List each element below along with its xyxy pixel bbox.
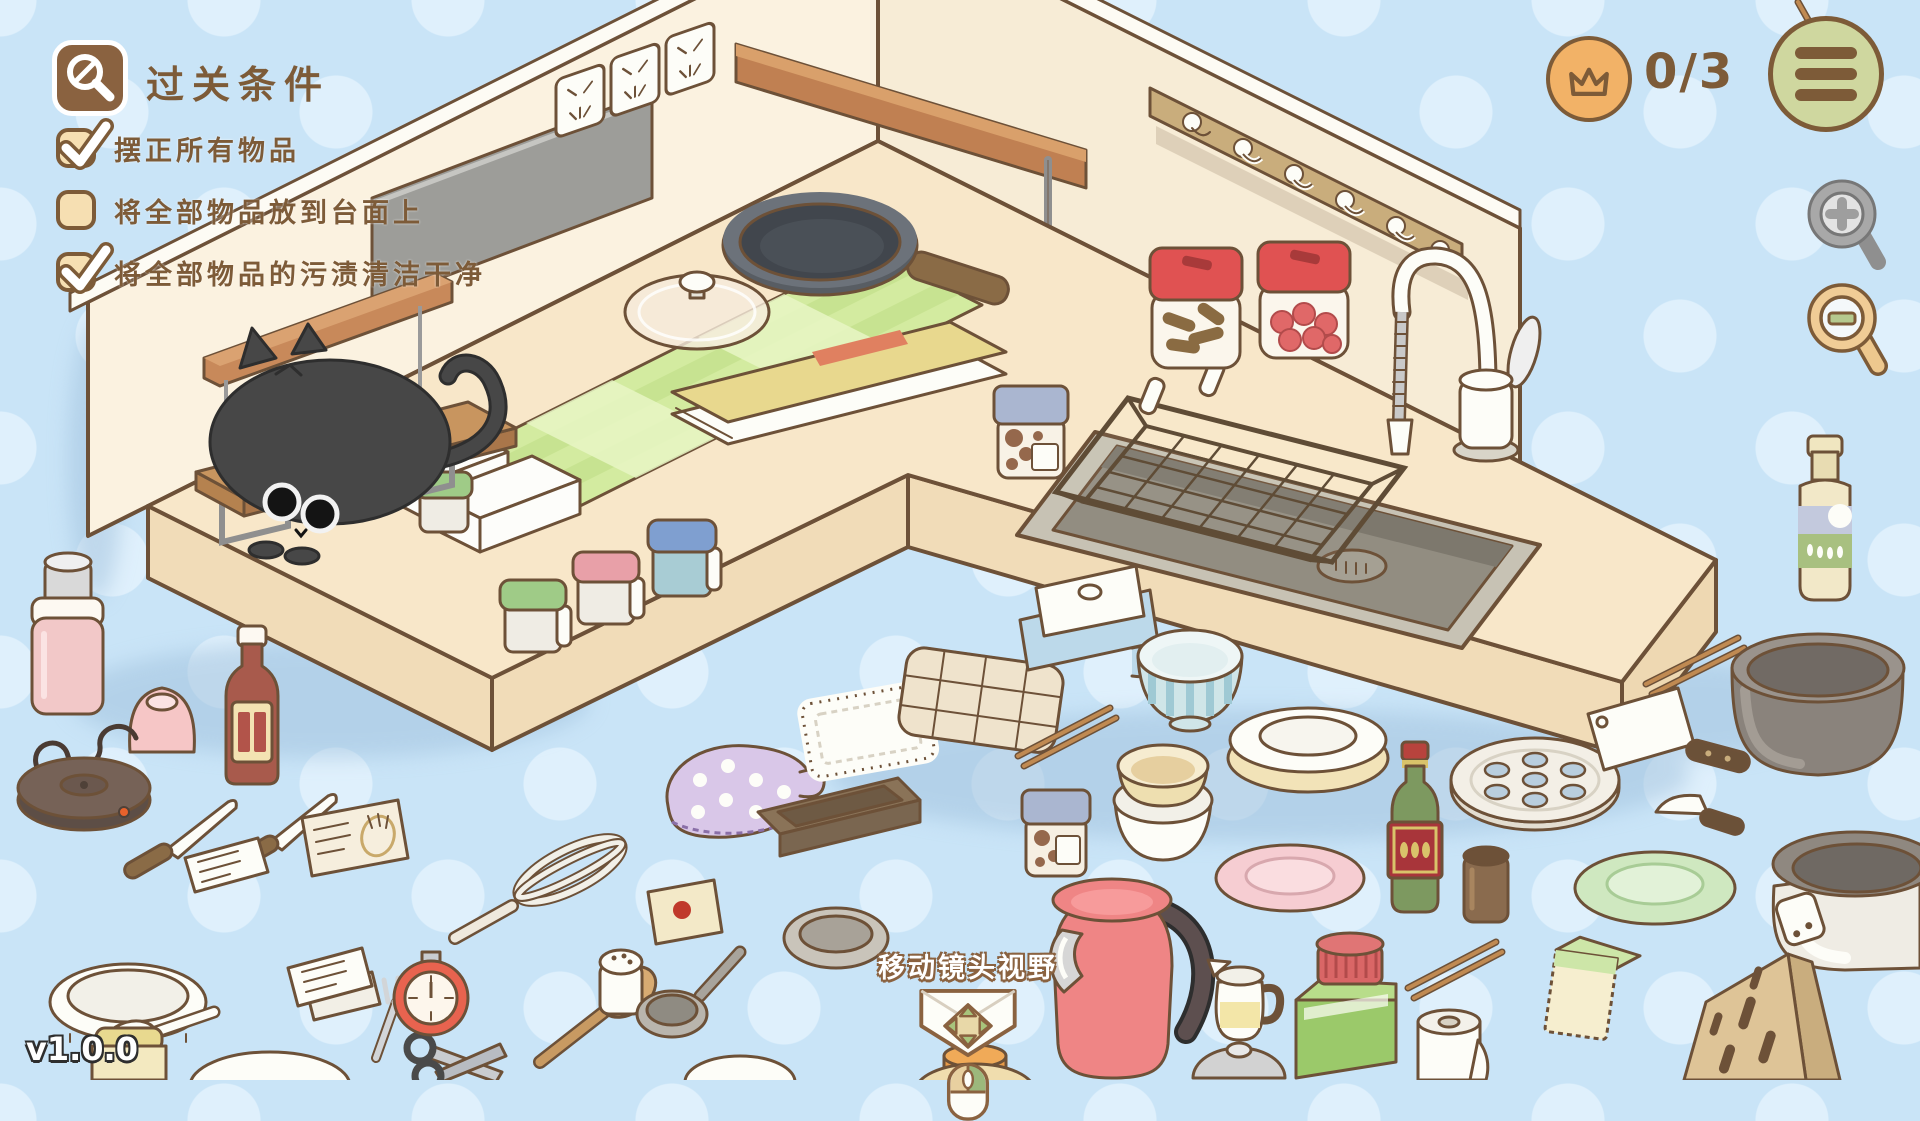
check-icon (54, 240, 116, 302)
pot-lid-dome[interactable] (1193, 1043, 1285, 1078)
magnifier-minus-icon (1829, 313, 1855, 324)
recipe-cards[interactable] (288, 948, 380, 1020)
zoom-out-button[interactable] (1806, 282, 1890, 386)
condition-row-2: 将全部物品放到台面上 (56, 190, 424, 230)
salt-shaker[interactable] (600, 950, 642, 1014)
green-plate[interactable] (1575, 852, 1735, 924)
game-screen: 过关条件 摆正所有物品 将全部物品放到台面上 将全部物品的污渍清洁干净 0/3 (0, 0, 1920, 1080)
star-counter: 0/3 (1644, 44, 1734, 100)
note-card[interactable] (185, 838, 268, 892)
jam-jar[interactable] (994, 386, 1068, 478)
scissors[interactable] (407, 1035, 506, 1080)
inspect-magnifier-icon[interactable] (52, 40, 128, 116)
condition-row-1: 摆正所有物品 (56, 128, 300, 168)
condition-checkbox-2[interactable] (56, 190, 96, 230)
condition-row-3: 将全部物品的污渍清洁干净 (56, 252, 486, 292)
red-lid-jar-berries[interactable] (1258, 242, 1350, 358)
jam-jar-2[interactable] (1022, 790, 1090, 876)
spice-canister-blue[interactable] (648, 520, 721, 596)
crown-badge (1546, 36, 1632, 122)
bowl-stack[interactable] (1114, 745, 1212, 860)
pink-plate[interactable] (1216, 845, 1364, 911)
paring-knife[interactable] (1656, 795, 1745, 836)
paper-towel-roll[interactable] (1418, 1010, 1488, 1080)
move-arrows-icon (909, 987, 1027, 1059)
egg-card[interactable] (648, 880, 722, 944)
spice-canister-pink[interactable] (573, 552, 644, 624)
rice-cooker[interactable] (1773, 832, 1920, 976)
zoom-in-button[interactable] (1806, 178, 1890, 282)
pickle-jar[interactable] (1296, 933, 1396, 1078)
gray-pot[interactable] (1732, 634, 1904, 775)
camera-hint: 移动镜头视野 (858, 946, 1078, 1121)
pink-thermos[interactable] (32, 553, 103, 714)
menu-button[interactable] (1768, 16, 1884, 132)
red-lid-jar-cinnamon[interactable] (1150, 248, 1242, 368)
goal-panel-title: 过关条件 (146, 54, 330, 109)
ladle[interactable] (637, 952, 740, 1037)
check-icon (54, 116, 116, 178)
steamer-plate[interactable] (1451, 738, 1619, 830)
whisk[interactable] (455, 826, 631, 938)
knife-block[interactable] (1684, 954, 1840, 1080)
condition-checkbox-3[interactable] (56, 252, 96, 292)
cream-pitcher[interactable] (1208, 960, 1280, 1040)
dish-soap-bottle[interactable] (1798, 436, 1852, 600)
condition-label-2: 将全部物品放到台面上 (114, 191, 424, 230)
mouse-drag-icon (946, 1063, 990, 1121)
plate-stack[interactable] (1228, 708, 1388, 792)
condition-label-1: 摆正所有物品 (114, 129, 300, 168)
kitchen-timer[interactable] (394, 952, 468, 1035)
white-bowl-partial[interactable] (685, 1056, 795, 1080)
crown-icon (1562, 56, 1616, 102)
condition-checkbox-1[interactable] (56, 128, 96, 168)
chopsticks-2[interactable] (1408, 942, 1502, 998)
hamburger-icon (1795, 47, 1857, 59)
version-label: v1.0.0 (26, 1030, 138, 1068)
camera-hint-label: 移动镜头视野 (858, 946, 1078, 985)
white-plate-partial[interactable] (190, 1052, 350, 1080)
condition-label-3: 将全部物品的污渍清洁干净 (114, 253, 486, 292)
sponge[interactable] (1545, 934, 1642, 1043)
spice-canister-green[interactable] (500, 580, 571, 652)
brown-cup[interactable] (1464, 847, 1508, 922)
